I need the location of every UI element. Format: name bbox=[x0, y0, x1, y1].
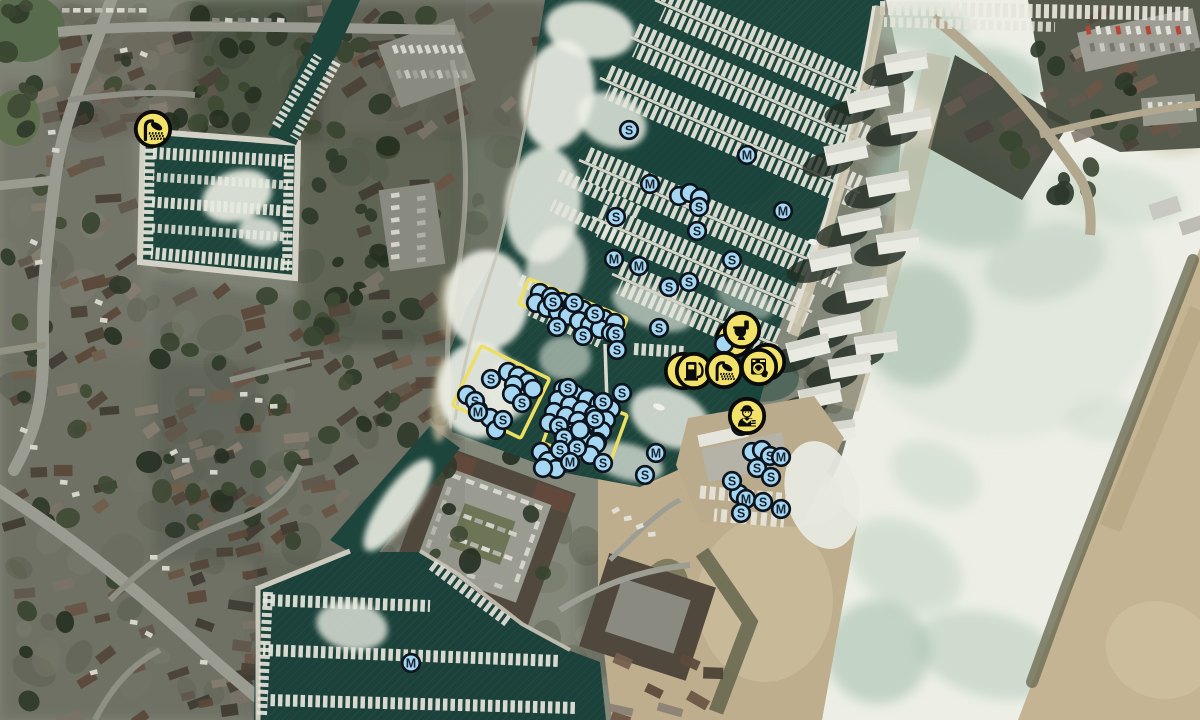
svg-text:M: M bbox=[634, 259, 644, 273]
svg-text:M: M bbox=[645, 177, 655, 191]
svg-text:S: S bbox=[767, 470, 775, 484]
svg-text:M: M bbox=[776, 450, 786, 464]
svg-text:S: S bbox=[591, 412, 599, 426]
svg-text:S: S bbox=[612, 210, 620, 224]
svg-text:S: S bbox=[693, 224, 701, 238]
svg-text:S: S bbox=[564, 381, 572, 395]
svg-text:S: S bbox=[599, 456, 607, 470]
svg-text:S: S bbox=[613, 343, 621, 357]
svg-text:S: S bbox=[685, 275, 693, 289]
svg-text:M: M bbox=[776, 502, 786, 516]
svg-text:S: S bbox=[570, 296, 578, 310]
svg-text:M: M bbox=[565, 455, 575, 469]
svg-text:S: S bbox=[655, 321, 663, 335]
svg-text:M: M bbox=[609, 252, 619, 266]
svg-text:S: S bbox=[487, 372, 495, 386]
svg-text:S: S bbox=[728, 253, 736, 267]
svg-text:M: M bbox=[406, 656, 416, 670]
svg-text:S: S bbox=[618, 386, 626, 400]
svg-text:M: M bbox=[651, 446, 661, 460]
svg-text:S: S bbox=[553, 320, 561, 334]
svg-text:S: S bbox=[641, 468, 649, 482]
svg-text:S: S bbox=[591, 307, 599, 321]
svg-text:S: S bbox=[599, 395, 607, 409]
svg-text:S: S bbox=[625, 123, 633, 137]
svg-text:S: S bbox=[549, 295, 557, 309]
svg-text:S: S bbox=[759, 495, 767, 509]
svg-text:M: M bbox=[473, 405, 483, 419]
svg-text:S: S bbox=[612, 327, 620, 341]
svg-text:S: S bbox=[579, 329, 587, 343]
svg-text:S: S bbox=[753, 461, 761, 475]
svg-text:S: S bbox=[518, 396, 526, 410]
svg-text:S: S bbox=[737, 506, 745, 520]
svg-text:M: M bbox=[742, 148, 752, 162]
svg-text:S: S bbox=[728, 474, 736, 488]
svg-text:M: M bbox=[778, 204, 788, 218]
svg-text:S: S bbox=[499, 413, 507, 427]
svg-text:S: S bbox=[695, 200, 703, 214]
svg-text:S: S bbox=[665, 280, 673, 294]
